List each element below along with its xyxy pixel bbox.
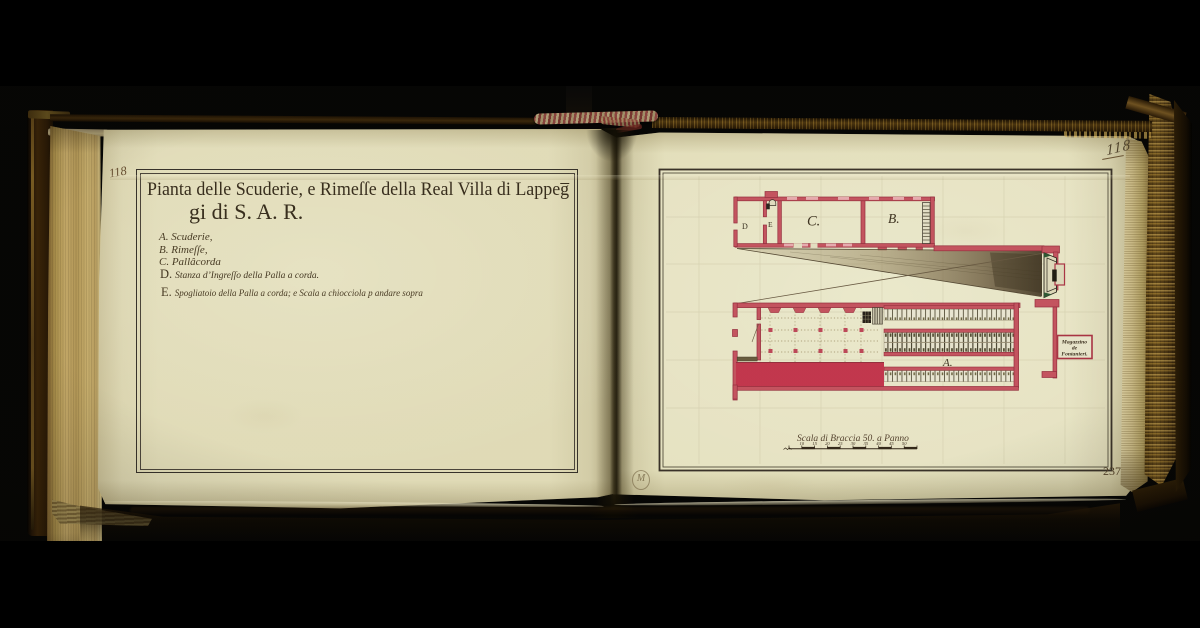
svg-text:D: D	[742, 222, 748, 231]
svg-text:50: 50	[902, 441, 907, 446]
svg-text:15: 15	[812, 441, 817, 446]
svg-text:C.: C.	[807, 214, 820, 230]
svg-text:35: 35	[864, 441, 869, 446]
svg-text:20: 20	[825, 441, 830, 446]
svg-text:Fontanieri.: Fontanieri.	[1061, 352, 1087, 358]
svg-text:25: 25	[838, 441, 843, 446]
svg-text:30: 30	[851, 441, 856, 446]
svg-text:E: E	[768, 220, 773, 229]
svg-text:10: 10	[800, 441, 805, 446]
svg-text:40: 40	[876, 441, 881, 446]
svg-text:45: 45	[889, 441, 894, 446]
svg-text:B.: B.	[888, 211, 900, 226]
